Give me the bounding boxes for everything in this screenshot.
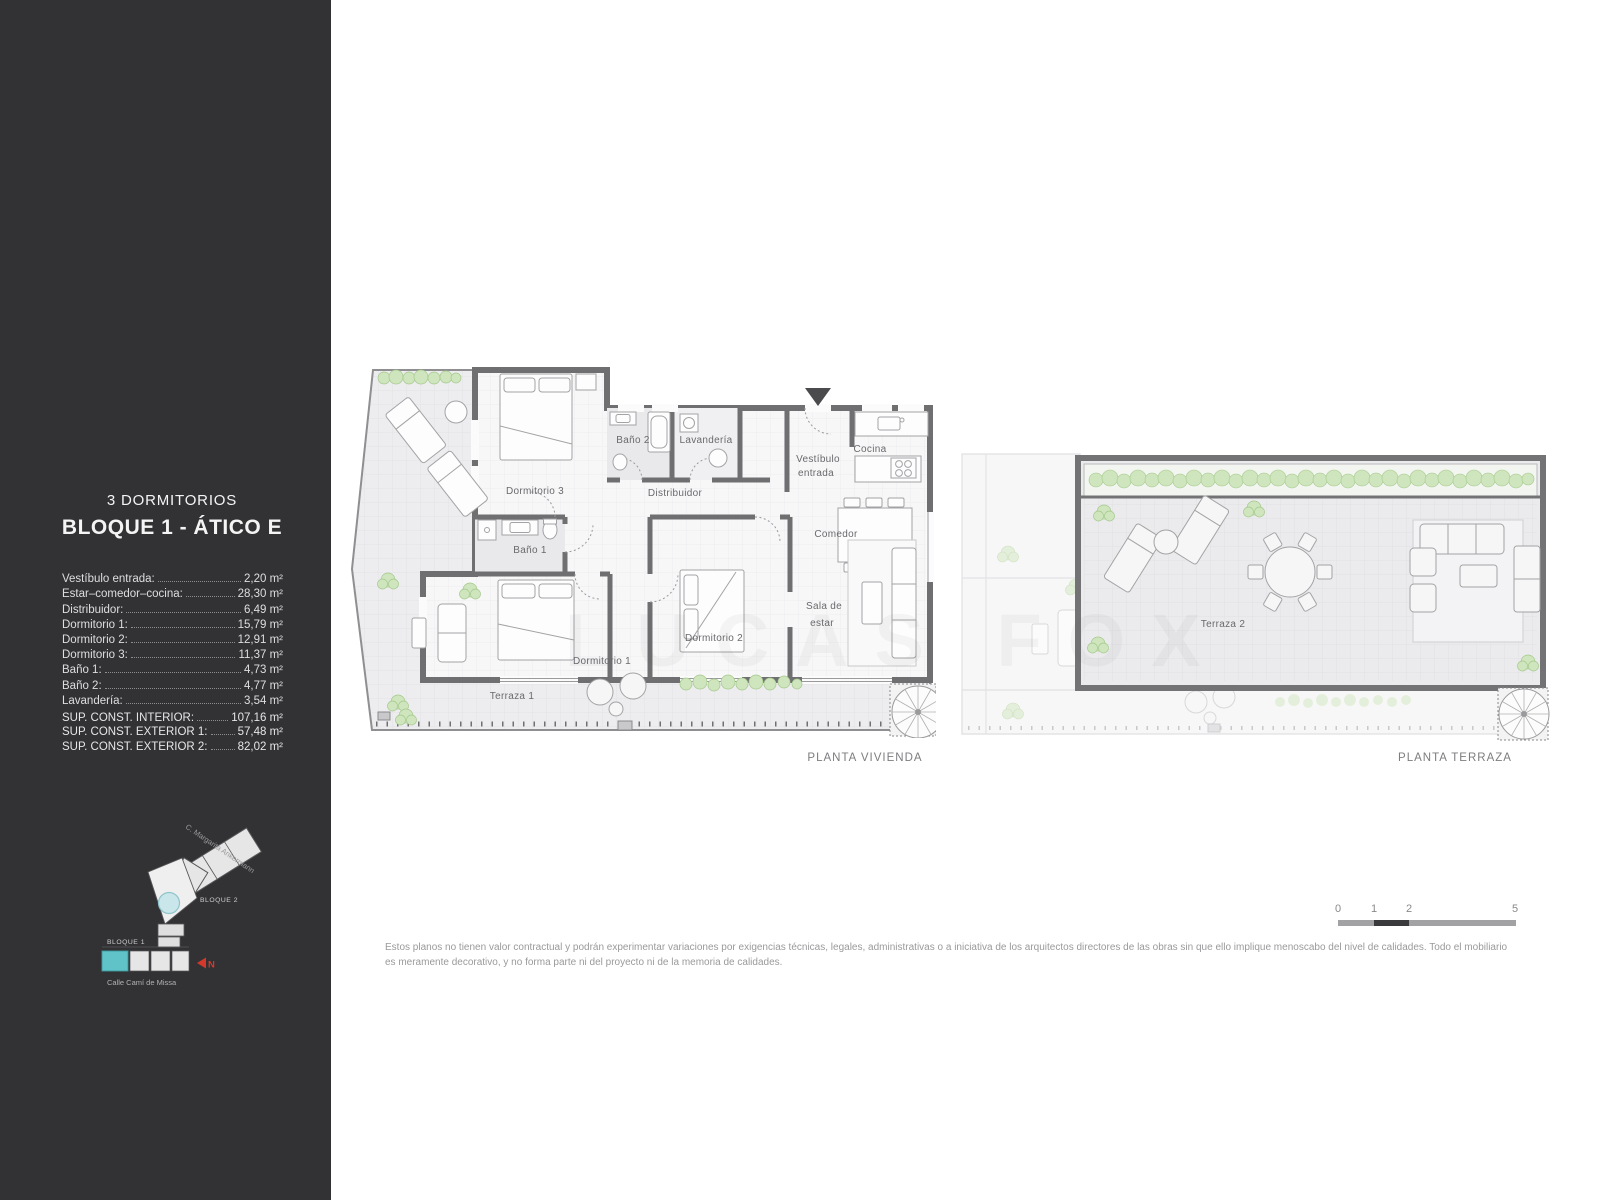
room-label-sala-1: Sala de — [806, 601, 842, 612]
area-row: Dormitorio 3:11,37 m² — [62, 646, 283, 661]
area-value: 4,77 m² — [244, 680, 283, 692]
pool-icon — [159, 893, 180, 914]
dot-leader — [186, 596, 235, 597]
total-label: SUP. CONST. INTERIOR: — [62, 712, 194, 724]
scale-tick-0: 0 — [1335, 903, 1341, 915]
area-label: Dormitorio 1: — [62, 619, 128, 631]
total-row: SUP. CONST. INTERIOR:107,16 m² — [62, 709, 283, 724]
terraza-floor-plan: Terraza 2 — [958, 448, 1550, 744]
dot-leader — [131, 657, 236, 658]
sofa-icon — [848, 540, 916, 666]
area-label: Baño 2: — [62, 680, 102, 692]
total-value: 57,48 m² — [238, 726, 283, 738]
street-label-bottom: Calle Camí de Missa — [107, 978, 177, 987]
page-title: 3 DORMITORIOS BLOQUE 1 - ÁTICO E — [12, 492, 332, 540]
area-value: 6,49 m² — [244, 604, 283, 616]
area-value: 2,20 m² — [244, 573, 283, 585]
dot-leader — [105, 672, 241, 673]
total-label: SUP. CONST. EXTERIOR 1: — [62, 726, 208, 738]
plan-sheet: 3 DORMITORIOS BLOQUE 1 - ÁTICO E Vestíbu… — [0, 0, 1600, 1200]
total-row: SUP. CONST. EXTERIOR 1:57,48 m² — [62, 724, 283, 739]
outdoor-sofa-icon — [1410, 520, 1540, 642]
title-bedrooms: 3 DORMITORIOS — [12, 492, 332, 509]
disclaimer-text: Estos planos no tienen valor contractual… — [385, 941, 1513, 970]
north-label: N — [208, 960, 215, 971]
total-row: SUP. CONST. EXTERIOR 2:82,02 m² — [62, 738, 283, 753]
caption-planta-vivienda: PLANTA VIVIENDA — [760, 752, 970, 764]
area-value: 12,91 m² — [238, 634, 283, 646]
site-unit — [151, 951, 170, 971]
scale-tick-1: 1 — [1371, 903, 1377, 915]
railing-box — [378, 712, 390, 720]
area-value: 15,79 m² — [238, 619, 283, 631]
terrace-table-icon — [445, 401, 467, 423]
room-label-vestibulo-1: Vestíbulo — [796, 454, 840, 465]
scale-segment — [1409, 920, 1516, 926]
area-value: 4,73 m² — [244, 664, 283, 676]
room-label-distribuidor: Distribuidor — [648, 488, 703, 499]
area-row: Vestíbulo entrada:2,20 m² — [62, 570, 283, 585]
scale-bar: 0 1 2 5 — [1338, 903, 1516, 931]
dot-leader — [131, 642, 235, 643]
dot-leader — [126, 612, 241, 613]
dot-leader — [131, 627, 235, 628]
vivienda-floor-plan: Dormitorio 3 Baño 2 Lavandería Vestíbulo… — [350, 362, 936, 738]
bed-icon — [498, 580, 574, 660]
area-label: Estar–comedor–cocina: — [62, 588, 183, 600]
spiral-staircase-icon — [1498, 688, 1549, 740]
area-row: Baño 2:4,77 m² — [62, 676, 283, 691]
scale-segment — [1338, 920, 1374, 926]
spiral-staircase-icon — [890, 684, 936, 738]
scale-segment-dark — [1374, 920, 1409, 926]
total-value: 82,02 m² — [238, 741, 283, 753]
total-label: SUP. CONST. EXTERIOR 2: — [62, 741, 208, 753]
area-label: Distribuidor: — [62, 604, 123, 616]
site-block — [158, 924, 184, 936]
room-label-terraza2: Terraza 2 — [1201, 619, 1246, 630]
dot-leader — [211, 734, 235, 735]
entrance-arrow-icon — [805, 388, 831, 406]
highlighted-unit — [102, 951, 128, 971]
area-value: 3,54 m² — [244, 695, 283, 707]
room-label-bano2: Baño 2 — [616, 435, 650, 446]
area-value: 11,37 m² — [238, 649, 283, 661]
room-label-comedor: Comedor — [814, 529, 858, 540]
total-value: 107,16 m² — [231, 712, 283, 724]
area-row: Estar–comedor–cocina:28,30 m² — [62, 585, 283, 600]
area-label: Lavandería: — [62, 695, 123, 707]
area-row: Distribuidor:6,49 m² — [62, 600, 283, 615]
title-unit: BLOQUE 1 - ÁTICO E — [12, 516, 332, 540]
area-label: Vestíbulo entrada: — [62, 573, 155, 585]
area-label: Dormitorio 2: — [62, 634, 128, 646]
room-label-sala-2: estar — [810, 618, 834, 629]
bloque1-label: BLOQUE 1 — [107, 939, 145, 946]
room-label-bano1: Baño 1 — [513, 545, 547, 556]
site-plan: C. Margarita Ankermann BLOQUE 2 BLOQUE 1… — [85, 806, 300, 996]
room-label-lavanderia: Lavandería — [679, 435, 732, 446]
scale-bar-strip — [1338, 920, 1516, 926]
dot-leader — [126, 703, 241, 704]
room-label-terraza1: Terraza 1 — [490, 691, 535, 702]
dot-leader — [211, 749, 235, 750]
dot-leader — [158, 581, 241, 582]
site-unit — [172, 951, 189, 971]
bloque2-label: BLOQUE 2 — [200, 897, 238, 904]
room-label-cocina: Cocina — [854, 444, 887, 455]
area-row: Dormitorio 1:15,79 m² — [62, 616, 283, 631]
room-label-dormitorio3: Dormitorio 3 — [506, 486, 564, 497]
area-list: Vestíbulo entrada:2,20 m² Estar–comedor–… — [62, 570, 283, 707]
room-label-vestibulo-2: entrada — [798, 468, 834, 479]
area-label: Dormitorio 3: — [62, 649, 128, 661]
railing-box — [618, 721, 632, 730]
sidebar: 3 DORMITORIOS BLOQUE 1 - ÁTICO E Vestíbu… — [0, 0, 331, 1200]
totals-list: SUP. CONST. INTERIOR:107,16 m² SUP. CONS… — [62, 709, 283, 753]
scale-tick-5: 5 — [1512, 903, 1518, 915]
area-value: 28,30 m² — [238, 588, 283, 600]
room-label-dormitorio2: Dormitorio 2 — [685, 633, 743, 644]
dot-leader — [105, 688, 241, 689]
site-unit — [130, 951, 149, 971]
north-arrow-icon: N — [197, 958, 215, 971]
caption-planta-terraza: PLANTA TERRAZA — [1350, 752, 1560, 764]
scale-tick-2: 2 — [1406, 903, 1412, 915]
area-row: Lavandería:3,54 m² — [62, 692, 283, 707]
dot-leader — [197, 720, 228, 721]
site-block — [158, 937, 180, 947]
area-row: Baño 1:4,73 m² — [62, 661, 283, 676]
terrace-table-icon — [1154, 530, 1178, 554]
area-row: Dormitorio 2:12,91 m² — [62, 631, 283, 646]
area-label: Baño 1: — [62, 664, 102, 676]
room-label-dormitorio1: Dormitorio 1 — [573, 656, 631, 667]
